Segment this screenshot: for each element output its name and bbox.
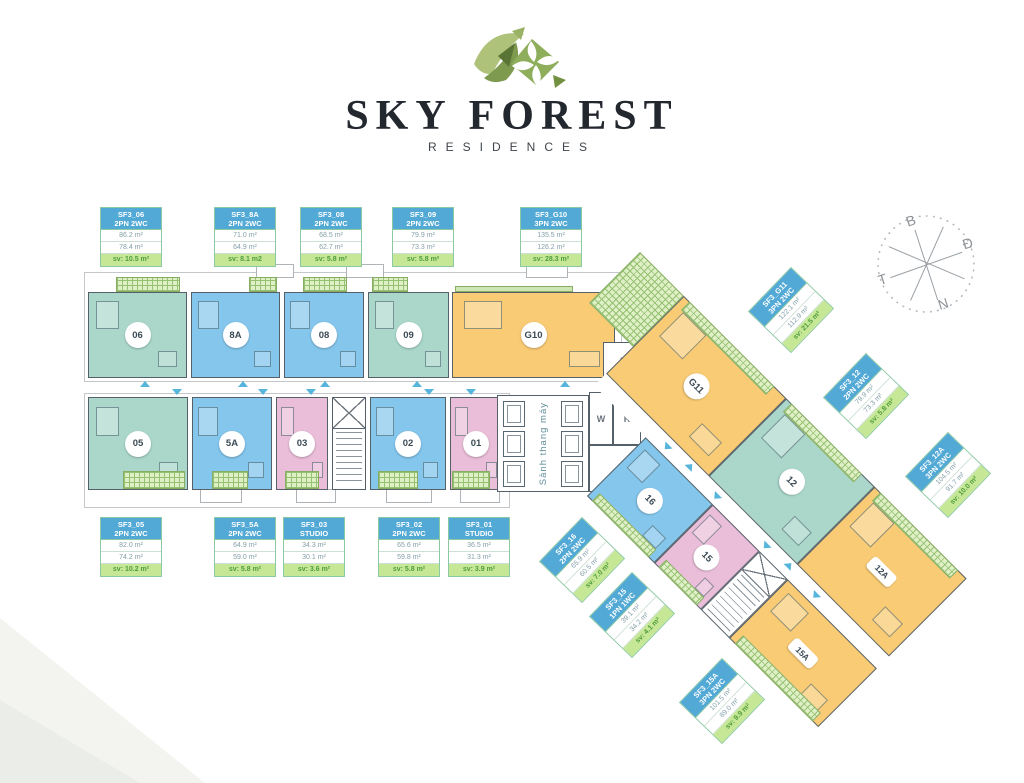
compass-east: Đ [960, 234, 975, 252]
balcony-stub [386, 489, 432, 503]
info-box-sf3-02[interactable]: SF3_022PN 2WC 65.6 m² 59.8 m² sv: 5.8 m² [378, 517, 440, 577]
unit-15a-label: 15A [786, 637, 819, 670]
info-header: SF3_062PN 2WC [101, 208, 161, 230]
unit-08[interactable]: 08 [284, 292, 364, 378]
gross-area: 71.0 m² [215, 230, 275, 242]
logo-icon [452, 22, 578, 94]
info-box-sf3-05[interactable]: SF3_052PN 2WC 82.0 m² 74.2 m² sv: 10.2 m… [100, 517, 162, 577]
gross-area: 65.6 m² [379, 540, 439, 552]
garden-area: sv: 10.5 m² [101, 254, 161, 266]
net-area: 30.1 m² [284, 552, 344, 564]
info-box-sf3-03[interactable]: SF3_03STUDIO 34.3 m² 30.1 m² sv: 3.6 m² [283, 517, 345, 577]
unit-g11-label: G11 [678, 368, 715, 405]
balcony [455, 286, 573, 292]
unit-16-label: 16 [632, 482, 669, 519]
balcony [285, 471, 319, 489]
unit-08-label: 08 [311, 322, 337, 348]
compass-north: B [904, 212, 918, 230]
info-header: SF3_052PN 2WC [101, 518, 161, 540]
entrance-arrow-icon [320, 381, 330, 387]
stairwell [332, 397, 366, 490]
elevator-shaft-x [333, 398, 365, 429]
info-header: SF3_082PN 2WC [301, 208, 361, 230]
info-box-sf3-g10[interactable]: SF3_G103PN 2WC 135.5 m² 126.2 m² sv: 28.… [520, 207, 582, 267]
entrance-arrow-icon [661, 442, 672, 453]
gross-area: 79.9 m² [393, 230, 453, 242]
balcony [116, 277, 180, 292]
entrance-arrow-icon [685, 461, 696, 472]
unit-06[interactable]: 06 [88, 292, 187, 378]
garden-area: sv: 28.3 m² [521, 254, 581, 266]
brand-title: SKY FOREST [0, 92, 1024, 140]
entrance-arrow-icon [466, 389, 476, 395]
net-area: 31.3 m² [449, 552, 509, 564]
gross-area: 36.5 m² [449, 540, 509, 552]
info-box-sf3-15[interactable]: SF3_151PN 1WC 39.1 m² 34.2 m² sv: 4.1 m² [589, 572, 675, 658]
gross-area: 82.0 m² [101, 540, 161, 552]
entrance-arrow-icon [711, 491, 722, 502]
info-box-sf3-8a[interactable]: SF3_8A2PN 2WC 71.0 m² 64.9 m² sv: 8.1 m2 [214, 207, 276, 267]
net-area: 78.4 m² [101, 242, 161, 254]
info-header: SF3_G103PN 2WC [521, 208, 581, 230]
unit-06-label: 06 [125, 322, 151, 348]
info-box-sf3-12a[interactable]: SF3_12A3PN 2WC 104.5 m² 91.7 m² sv: 10.0… [905, 432, 991, 518]
unit-15-label: 15 [688, 539, 725, 576]
balcony [303, 277, 347, 292]
compass-west: T [876, 270, 890, 288]
info-box-sf3-16[interactable]: SF3_162PN 2WC 65.9 m² 60.5 m² sv: 7.0 m² [539, 517, 625, 603]
entrance-arrow-icon [306, 389, 316, 395]
net-area: 62.7 m² [301, 242, 361, 254]
elevator [503, 461, 525, 487]
balcony [378, 471, 418, 489]
unit-03-label: 03 [289, 431, 315, 457]
balcony [212, 471, 248, 489]
info-box-sf3-06[interactable]: SF3_062PN 2WC 86.2 m² 78.4 m² sv: 10.5 m… [100, 207, 162, 267]
info-header: SF3_022PN 2WC [379, 518, 439, 540]
info-header: SF3_03STUDIO [284, 518, 344, 540]
unit-02-label: 02 [395, 431, 421, 457]
garden-area: sv: 8.1 m2 [215, 254, 275, 266]
entrance-arrow-icon [238, 381, 248, 387]
unit-01-label: 01 [463, 431, 489, 457]
entrance-arrow-icon [412, 381, 422, 387]
gross-area: 34.3 m² [284, 540, 344, 552]
unit-g10-label: G10 [521, 322, 547, 348]
balcony [372, 277, 408, 292]
floor-plan-page: { "brand": { "title": "SKY FOREST", "sub… [0, 0, 1024, 783]
gross-area: 86.2 m² [101, 230, 161, 242]
balcony-stub [200, 489, 242, 503]
entrance-arrow-icon [258, 389, 268, 395]
entrance-arrow-icon [424, 389, 434, 395]
info-box-sf3-01[interactable]: SF3_01STUDIO 36.5 m² 31.3 m² sv: 3.9 m² [448, 517, 510, 577]
info-box-sf3-09[interactable]: SF3_092PN 2WC 79.9 m² 73.3 m² sv: 5.8 m² [392, 207, 454, 267]
garden-area: sv: 5.8 m² [215, 564, 275, 576]
balcony [123, 471, 185, 489]
info-header: SF3_8A2PN 2WC [215, 208, 275, 230]
entrance-arrow-icon [140, 381, 150, 387]
unit-8a[interactable]: 8A [191, 292, 280, 378]
balcony [249, 277, 277, 292]
entrance-arrow-icon [760, 540, 771, 551]
net-area: 64.9 m² [215, 242, 275, 254]
entrance-arrow-icon [810, 590, 821, 601]
net-area: 126.2 m² [521, 242, 581, 254]
net-area: 59.0 m² [215, 552, 275, 564]
info-box-sf3-12[interactable]: SF3_122PN 2WC 79.9 m² 73.3 m² sv: 5.8 m² [823, 353, 909, 439]
balcony-stub [460, 489, 500, 503]
gross-area: 64.9 m² [215, 540, 275, 552]
unit-09[interactable]: 09 [368, 292, 449, 378]
garden-area: sv: 5.8 m² [301, 254, 361, 266]
balcony [452, 471, 490, 489]
unit-5a-label: 5A [219, 431, 245, 457]
stair-treads [336, 432, 362, 486]
entrance-arrow-icon [172, 389, 182, 395]
info-box-sf3-15a[interactable]: SF3_15A3PN 2WC 101.5 m² 89.0 m² sv: 9.9 … [679, 658, 765, 744]
garden-area: sv: 10.2 m² [101, 564, 161, 576]
brand-subtitle: RESIDENCES [0, 140, 1024, 154]
info-box-sf3-g11[interactable]: SF3_G113PN 2WC 122.1 m² 112.9 m² sv: 21.… [748, 267, 834, 353]
info-header: SF3_092PN 2WC [393, 208, 453, 230]
info-header: SF3_5A2PN 2WC [215, 518, 275, 540]
info-box-sf3-08[interactable]: SF3_082PN 2WC 68.5 m² 62.7 m² sv: 5.8 m² [300, 207, 362, 267]
info-box-sf3-5a[interactable]: SF3_5A2PN 2WC 64.9 m² 59.0 m² sv: 5.8 m² [214, 517, 276, 577]
garden-area: sv: 3.9 m² [449, 564, 509, 576]
gross-area: 135.5 m² [521, 230, 581, 242]
net-area: 59.8 m² [379, 552, 439, 564]
info-header: SF3_01STUDIO [449, 518, 509, 540]
balcony-stub [296, 489, 336, 503]
elevator [503, 431, 525, 457]
garden-area: sv: 3.6 m² [284, 564, 344, 576]
unit-12a-label: 12A [865, 555, 898, 588]
entrance-arrow-icon [784, 560, 795, 571]
compass-icon: B Đ T N [868, 206, 984, 322]
gross-area: 68.5 m² [301, 230, 361, 242]
garden-area: sv: 5.8 m² [393, 254, 453, 266]
entrance-arrow-icon [560, 381, 570, 387]
net-area: 74.2 m² [101, 552, 161, 564]
unit-8a-label: 8A [223, 322, 249, 348]
unit-05-label: 05 [125, 431, 151, 457]
garden-area: sv: 5.8 m² [379, 564, 439, 576]
unit-12-label: 12 [773, 463, 810, 500]
net-area: 73.3 m² [393, 242, 453, 254]
unit-09-label: 09 [396, 322, 422, 348]
